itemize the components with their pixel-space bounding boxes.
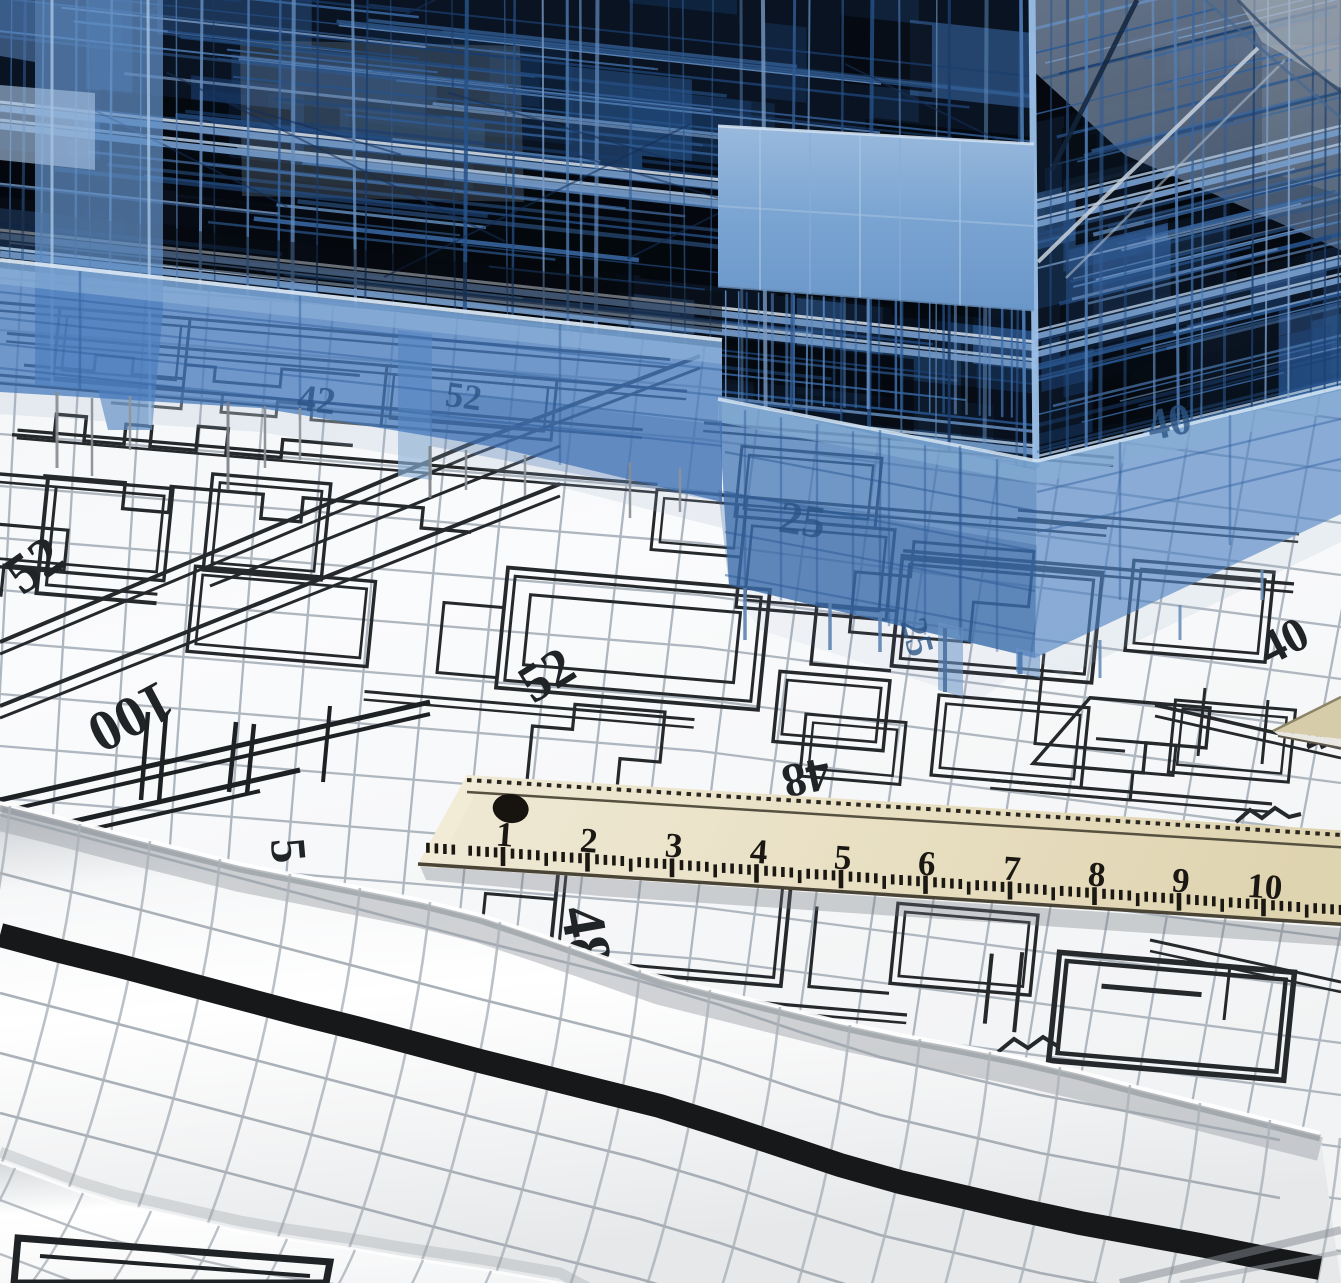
svg-text:42: 42	[295, 377, 338, 423]
svg-text:5: 5	[260, 836, 318, 866]
svg-text:8: 8	[1087, 854, 1107, 894]
svg-text:52: 52	[443, 374, 484, 419]
svg-text:4: 4	[749, 831, 769, 871]
svg-text:25: 25	[776, 491, 829, 549]
